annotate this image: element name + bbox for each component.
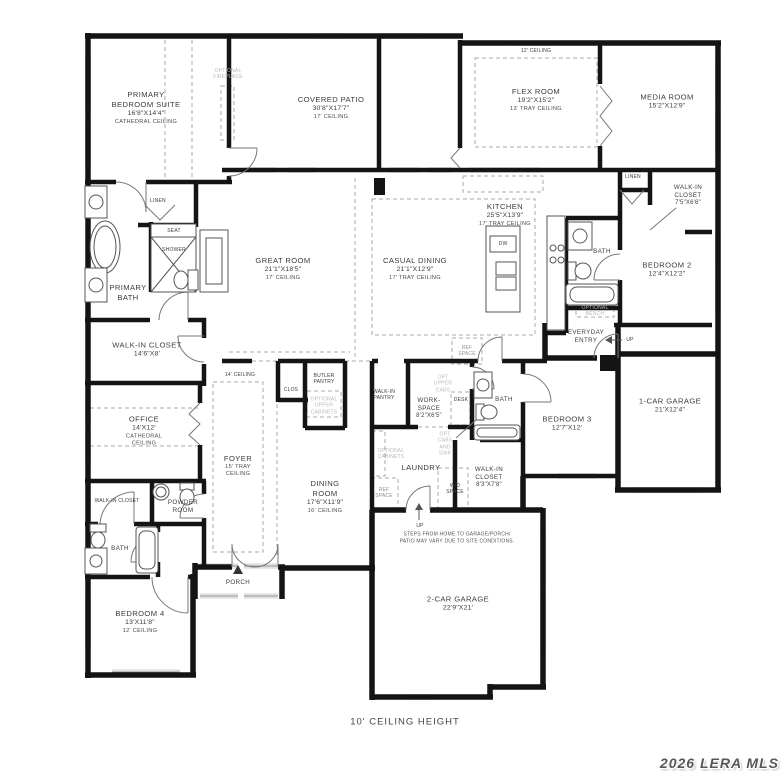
office-cathedral-lines: [90, 408, 198, 446]
kitchen-cabinets-outline: [463, 176, 543, 192]
great-room-builtin: [200, 230, 228, 292]
door-arc-primary-suite: [116, 182, 146, 212]
door-arc-bath2: [594, 254, 620, 280]
kitchen-island: [486, 226, 520, 312]
floorplan-graphic: [0, 0, 781, 774]
cooktop-icon: [547, 216, 565, 330]
butler-cabinets-outline: [307, 391, 341, 417]
door-swings: [100, 86, 676, 613]
door-arc-everyday-entry: [594, 334, 618, 358]
cased-opening-lines: [252, 361, 448, 427]
toilet-primary-icon: [174, 270, 198, 290]
garage-up-arrow-head: [415, 503, 423, 510]
fixtures: [85, 186, 618, 574]
door-arc-wic4: [100, 492, 134, 524]
door-arc-bedroom3: [523, 374, 551, 402]
door-diag-bedroom2: [650, 208, 676, 230]
wall-block-entry: [600, 355, 617, 371]
floor-plan: PRIMARY BEDROOM SUITE16'8"X14'4"CATHEDRA…: [0, 0, 781, 774]
ref-space-laundry-outline: [371, 478, 398, 509]
foyer-tray-outline: [213, 382, 263, 552]
bath4-fixtures: [85, 524, 158, 574]
primary-cathedral-lines: [165, 40, 192, 178]
door-arc-primary-closet: [159, 292, 188, 320]
walls-exterior: [85, 33, 721, 700]
mls-watermark: 2026 LERA MLS: [660, 755, 779, 771]
door-linen-primary: [145, 205, 175, 220]
ceiling-height-note: 10' CEILING HEIGHT: [350, 717, 460, 728]
powder-fixtures: [153, 483, 194, 505]
desk-outline: [451, 392, 470, 425]
double-door-office: [189, 403, 200, 445]
window-markers: [88, 36, 718, 697]
door-arc-closet-hall: [178, 336, 204, 362]
door-flex-patio: [451, 148, 460, 168]
symbols: [233, 336, 622, 574]
bathtub-primary-icon: [90, 221, 120, 273]
bath2-fixtures: [566, 222, 618, 305]
wall-column: [374, 178, 385, 195]
flex-tray-ceiling-outline: [475, 58, 597, 147]
double-door-media: [600, 86, 612, 146]
garage-door-markers: [543, 490, 700, 652]
door-arc-bedroom4: [152, 577, 188, 613]
bath3-fixtures: [474, 372, 520, 440]
